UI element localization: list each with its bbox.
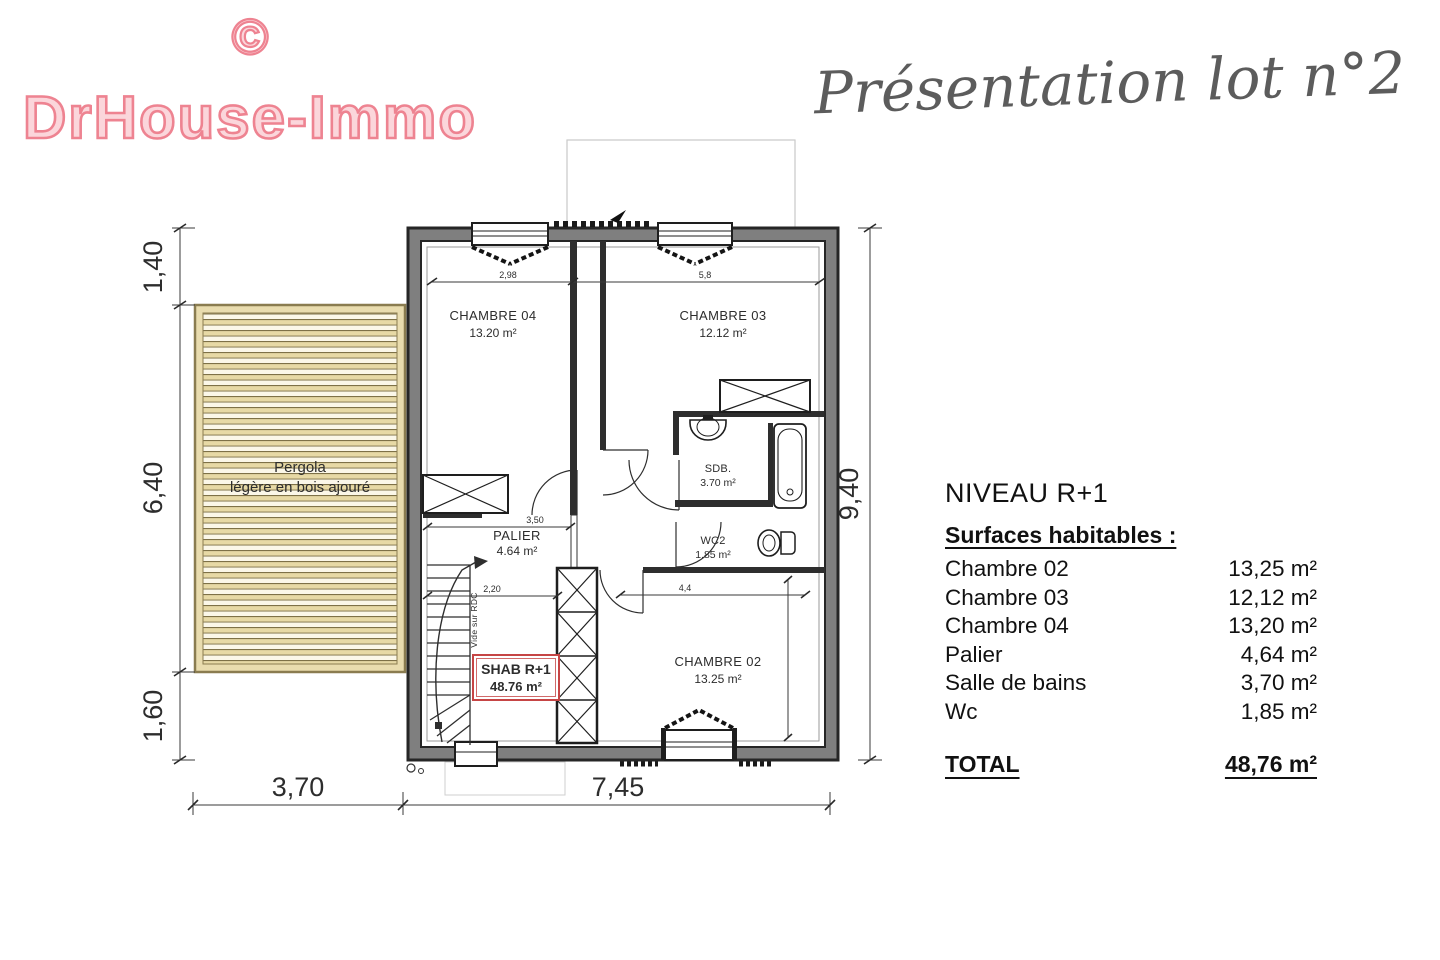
dim-left-bottom: 1,60 <box>140 690 168 743</box>
table-row: Chambre 04 13,20 m² <box>945 612 1317 641</box>
dim-bottom-right: 7,45 <box>592 772 645 802</box>
table-row: Palier 4,64 m² <box>945 641 1317 670</box>
row-value: 4,64 m² <box>1241 641 1317 670</box>
void-over-ground-floor-label: Vide sur RDC <box>469 592 479 647</box>
room-ch04-name: CHAMBRE 04 <box>449 308 536 323</box>
table-row: Wc 1,85 m² <box>945 698 1317 727</box>
table-row: Salle de bains 3,70 m² <box>945 669 1317 698</box>
pergola-label-2: légère en bois ajouré <box>230 479 370 496</box>
shab-label: SHAB R+1 <box>481 661 551 677</box>
room-ch02-name: CHAMBRE 02 <box>674 654 761 669</box>
dim-right: 9,40 <box>834 468 864 521</box>
total-row: TOTAL 48,76 m² <box>945 751 1317 778</box>
dim-ch04-width: 2,98 <box>499 270 517 280</box>
dim-palier-width: 3,50 <box>526 515 544 525</box>
table-row: Chambre 03 12,12 m² <box>945 584 1317 613</box>
surface-table: NIVEAU R+1 Surfaces habitables : Chambre… <box>945 478 1317 778</box>
room-sdb-area: 3.70 m² <box>700 477 736 489</box>
total-value: 48,76 m² <box>1225 751 1317 778</box>
room-wc2-area: 1.85 m² <box>695 549 731 561</box>
room-palier-area: 4.64 m² <box>497 544 538 558</box>
total-label: TOTAL <box>945 751 1020 778</box>
room-ch03-area: 12.12 m² <box>699 326 746 340</box>
shab-box: SHAB R+1 48.76 m² <box>473 655 559 700</box>
room-palier-name: PALIER <box>493 528 541 543</box>
row-value: 12,12 m² <box>1228 584 1317 613</box>
copyright-icon: © <box>0 12 500 62</box>
row-label: Salle de bains <box>945 669 1086 698</box>
presentation-page: © DrHouse-Immo Présentation lot n°2 Perg… <box>0 0 1440 960</box>
row-label: Palier <box>945 641 1003 670</box>
dim-ch02-width: 4,4 <box>679 583 692 593</box>
row-value: 1,85 m² <box>1241 698 1317 727</box>
floor-plan: Pergola légère en bois ajouré <box>140 130 900 830</box>
dim-bottom-left: 3,70 <box>272 772 325 802</box>
room-wc2-name: WC2 <box>700 535 725 547</box>
table-row: Chambre 02 13,25 m² <box>945 555 1317 584</box>
dim-left-mid: 6,40 <box>140 462 168 515</box>
dim-ch03-width: 5,8 <box>699 270 712 280</box>
room-ch03-name: CHAMBRE 03 <box>679 308 766 323</box>
room-sdb-name: SDB. <box>705 463 731 475</box>
row-value: 13,20 m² <box>1228 612 1317 641</box>
row-value: 3,70 m² <box>1241 669 1317 698</box>
row-value: 13,25 m² <box>1228 555 1317 584</box>
shab-area: 48.76 m² <box>490 679 543 694</box>
row-label: Chambre 03 <box>945 584 1069 613</box>
room-ch04-area: 13.20 m² <box>469 326 516 340</box>
row-label: Wc <box>945 698 978 727</box>
row-label: Chambre 02 <box>945 555 1069 584</box>
row-label: Chambre 04 <box>945 612 1069 641</box>
brand-logo: © DrHouse-Immo <box>0 12 500 148</box>
surface-rows: Chambre 02 13,25 m² Chambre 03 12,12 m² … <box>945 555 1317 727</box>
dim-left-top: 1,40 <box>140 241 168 294</box>
room-ch02-area: 13.25 m² <box>694 672 741 686</box>
surfaces-subtitle: Surfaces habitables : <box>945 522 1317 549</box>
level-title: NIVEAU R+1 <box>945 478 1317 509</box>
pergola: Pergola légère en bois ajouré <box>195 305 405 672</box>
pergola-label-1: Pergola <box>274 459 326 476</box>
dim-shab-width: 2,20 <box>483 584 501 594</box>
